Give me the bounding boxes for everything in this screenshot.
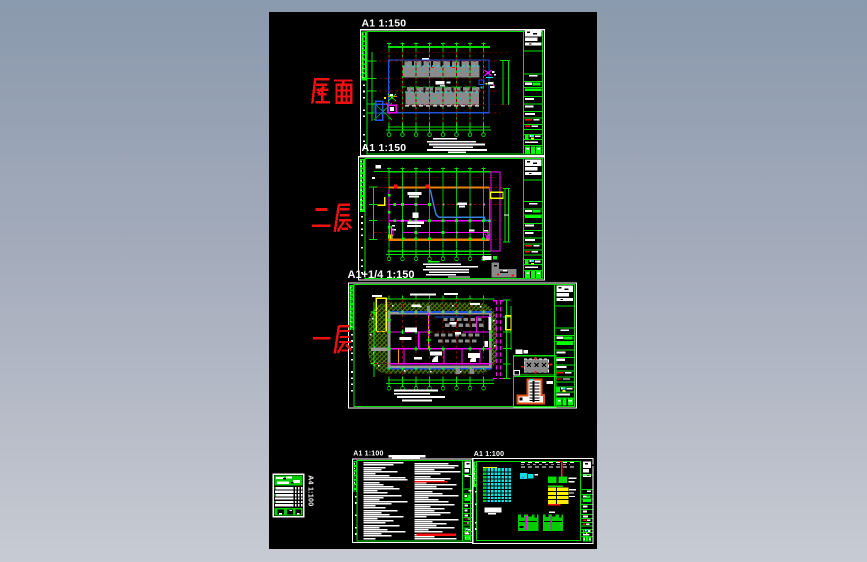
svg-text:A1 1:100: A1 1:100 [474, 451, 504, 458]
svg-text:A1+1/4 1:150: A1+1/4 1:150 [348, 269, 415, 281]
svg-text:A1 1:150: A1 1:150 [362, 17, 407, 29]
svg-text:A4 1:100: A4 1:100 [307, 475, 314, 506]
svg-text:A1 1:100: A1 1:100 [353, 451, 383, 458]
svg-text:A1 1:150: A1 1:150 [362, 142, 407, 154]
